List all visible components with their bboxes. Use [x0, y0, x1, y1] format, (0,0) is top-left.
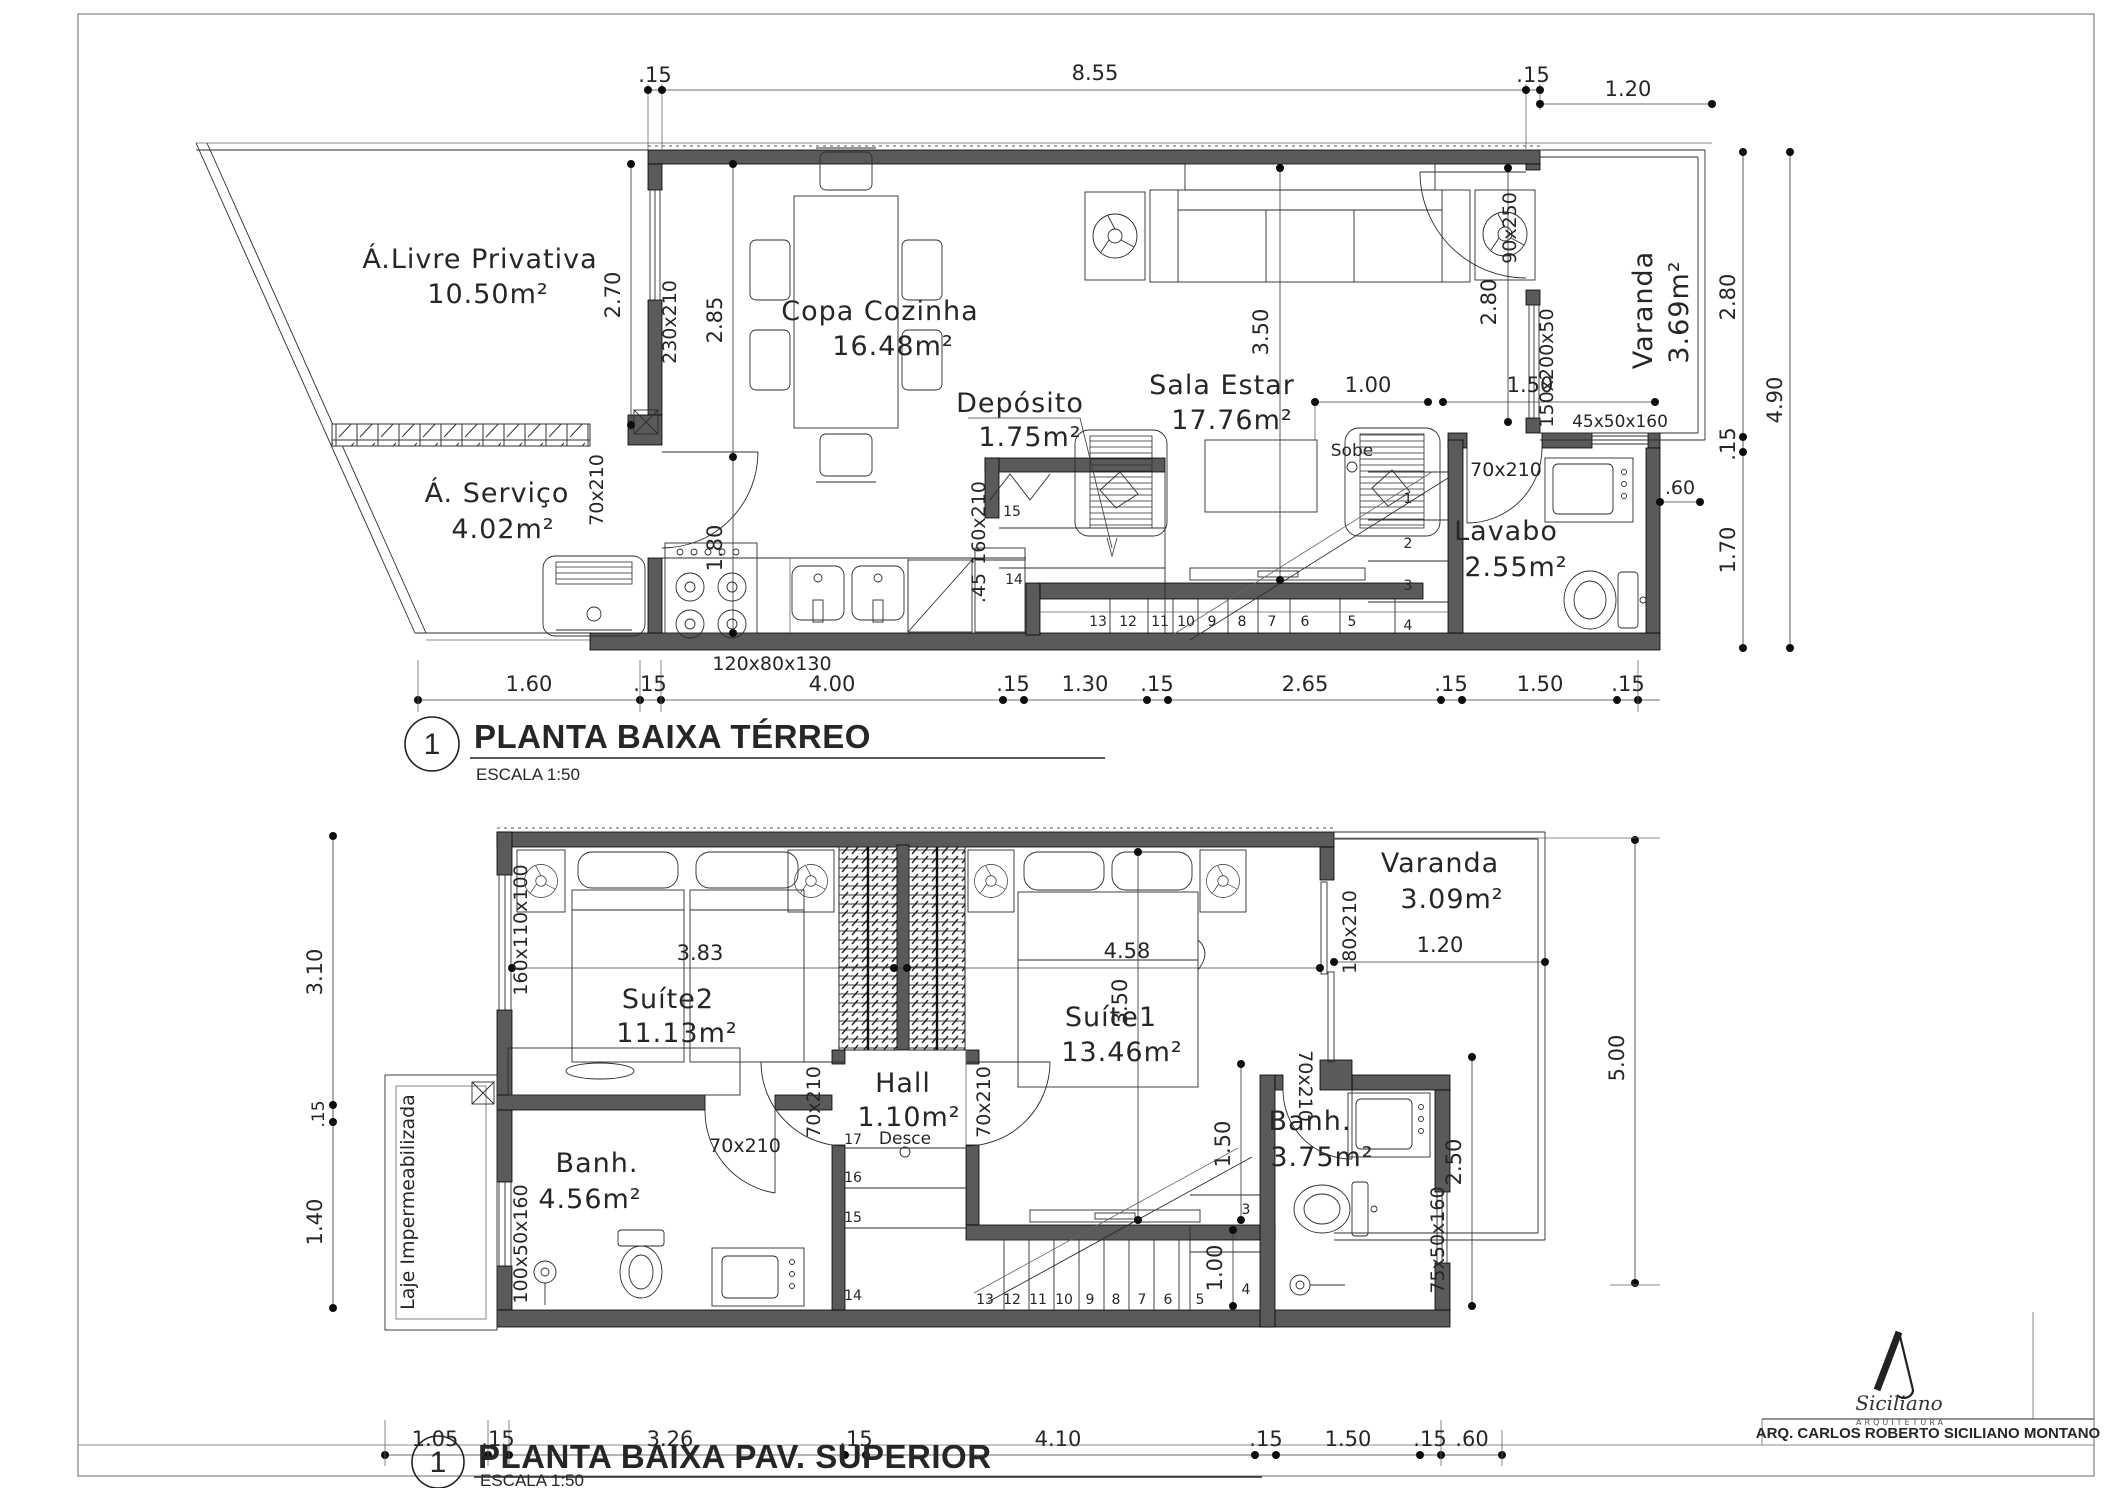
dim-r-170: 1.70 [1716, 527, 1740, 574]
toilet-icon [1564, 571, 1646, 629]
fan-icon [975, 865, 1008, 898]
stair-num: 15 [1003, 504, 1021, 520]
stair-num: 16 [844, 1170, 862, 1186]
dim-b-265: 2.65 [1282, 672, 1329, 696]
dim-sb-15d: .15 [1413, 1427, 1446, 1451]
lavabo-fixtures [1545, 458, 1646, 629]
door-label-hall-r: 70x210 [973, 1066, 995, 1138]
room-label-hall: Hall [875, 1068, 931, 1099]
stair-num: 5 [1348, 614, 1357, 630]
dep-label-160x210: 160x210 [968, 481, 990, 565]
dim-l-140: 1.40 [303, 1199, 327, 1246]
door-label-varanda: 90x250 [1499, 192, 1521, 264]
dim-b-15d: .15 [1434, 672, 1467, 696]
fan-icon [795, 865, 828, 898]
dim-250s: 2.50 [1442, 1139, 1466, 1186]
stair-num: 1 [1404, 491, 1413, 507]
room-label-suite2: Suíte2 [622, 984, 714, 1015]
dim-top-855: 8.55 [1072, 61, 1119, 85]
door-label-banh1: 70x210 [1294, 1050, 1316, 1122]
dim-100: 1.00 [1345, 373, 1392, 397]
win-label-75x50x160: 75x50x160 [1427, 1186, 1449, 1293]
dim-sb-410: 4.10 [1035, 1427, 1082, 1451]
win-label-230x210: 230x210 [659, 280, 681, 364]
stair-num: 10 [1055, 1292, 1073, 1308]
room-area-suite2: 11.13m² [616, 1018, 737, 1049]
stair-num: 6 [1301, 614, 1310, 630]
logo-signature: Siciliano [1855, 1391, 1942, 1415]
dim-b-130: 1.30 [1062, 672, 1109, 696]
stair-label-desce: Desce [879, 1129, 931, 1149]
architect-credit: ARQ. CARLOS ROBERTO SICILIANO MONTANO [1756, 1425, 2101, 1442]
stair-label-sobe: Sobe [1331, 441, 1373, 461]
suite2-furniture [508, 850, 834, 1095]
scale-superior: ESCALA 1:50 [480, 1471, 584, 1488]
dim-r-60: .60 [1665, 477, 1695, 499]
view-number-terreo: 1 [424, 728, 441, 761]
view-number-superior: 1 [430, 1446, 447, 1479]
dresser-icon [508, 1048, 740, 1095]
dim-120s: 1.20 [1417, 933, 1464, 957]
stair-num: 5 [1196, 1292, 1205, 1308]
dim-180: 1.80 [703, 525, 727, 572]
room-area-alivre: 10.50m² [427, 279, 548, 310]
dim-350: 3.50 [1249, 309, 1273, 356]
banh2-fixtures [534, 1230, 804, 1306]
dim-b-15a: .15 [633, 672, 666, 696]
kitchen-furniture [543, 543, 1026, 638]
stair-num: 6 [1164, 1292, 1173, 1308]
room-label-varanda-t: Varanda [1628, 251, 1659, 369]
dim-350s: 3.50 [1108, 979, 1132, 1026]
stair-num: 8 [1112, 1292, 1121, 1308]
sheet-frame [78, 14, 2094, 1476]
room-area-deposito: 1.75m² [978, 422, 1081, 453]
floorplan-drawing: Á.Livre Privativa 10.50m² Á. Serviço 4.0… [0, 0, 2110, 1488]
dep-label-45: .45 [968, 573, 990, 603]
dim-383: 3.83 [677, 941, 724, 965]
room-area-servico: 4.02m² [451, 514, 554, 545]
door-label-lavabo: 70x210 [1470, 459, 1542, 481]
drawing-sheet: Á.Livre Privativa 10.50m² Á. Serviço 4.0… [0, 0, 2110, 1488]
stair-num: 9 [1086, 1292, 1095, 1308]
fan-icon [1207, 865, 1240, 898]
room-label-deposito: Depósito [956, 388, 1084, 419]
door-label-banh2: 70x210 [709, 1135, 781, 1157]
title-superior: PLANTA BAIXA PAV. SUPERIOR [478, 1438, 992, 1475]
stair-num: 9 [1208, 614, 1217, 630]
dim-r-15: .15 [1716, 427, 1740, 460]
room-area-lavabo: 2.55m² [1464, 552, 1567, 583]
room-area-suite1: 13.46m² [1061, 1037, 1182, 1068]
dim-r-280: 2.80 [1716, 274, 1740, 321]
dim-500: 5.00 [1605, 1035, 1629, 1082]
credit-block: Siciliano ARQUITETURA ARQ. CARLOS ROBERT… [1756, 1312, 2101, 1445]
dim-458: 4.58 [1104, 939, 1151, 963]
dim-b-400: 4.00 [809, 672, 856, 696]
vanity-icon [712, 1248, 804, 1306]
door-label-hall-l: 70x210 [803, 1066, 825, 1138]
stair-num: 11 [1151, 614, 1169, 630]
dim-l-15: .15 [309, 1100, 329, 1127]
room-area-sala: 17.76m² [1171, 405, 1292, 436]
dim-top-15r: .15 [1516, 63, 1549, 87]
toilet-icon [1294, 1182, 1377, 1236]
stair-num: 12 [1003, 1292, 1021, 1308]
dim-left-270: 2.70 [601, 272, 625, 319]
room-area-varanda-t: 3.69m² [1664, 260, 1695, 363]
stair-num: 3 [1242, 1202, 1251, 1218]
counter-cabinet-icon [908, 548, 1025, 632]
room-label-sala: Sala Estar [1149, 370, 1295, 401]
terreo-plan: Á.Livre Privativa 10.50m² Á. Serviço 4.0… [196, 61, 1794, 784]
dim-sb-15c: .15 [1249, 1427, 1282, 1451]
stair-num: 13 [1089, 614, 1107, 630]
room-label-banh2: Banh. [556, 1148, 639, 1179]
double-sink-icon [792, 566, 904, 622]
room-label-lavabo: Lavabo [1454, 516, 1558, 547]
room-area-copa: 16.48m² [832, 331, 953, 362]
superior-title-block: 1 PLANTA BAIXA PAV. SUPERIOR ESCALA 1:50 [412, 1436, 1262, 1488]
cobogo-wall [332, 424, 590, 446]
win-label-45x50x160: 45x50x160 [1572, 412, 1668, 432]
laje-label: Laje Impermeabilizada [397, 1094, 419, 1310]
dim-100s: 1.00 [1203, 1245, 1227, 1292]
stair-num: 12 [1119, 614, 1137, 630]
dim-285: 2.85 [703, 297, 727, 344]
stair-num: 7 [1268, 614, 1277, 630]
stair-num: 11 [1029, 1292, 1047, 1308]
dim-150h: 1.50 [1507, 373, 1554, 397]
win-label-150x200x50: 150x200x50 [1536, 308, 1558, 427]
stair-num: 4 [1404, 618, 1413, 634]
room-label-servico: Á. Serviço [425, 477, 570, 509]
room-label-copa: Copa Cozinha [781, 296, 978, 327]
stair-num: 3 [1404, 578, 1413, 594]
scale-terreo: ESCALA 1:50 [476, 765, 580, 784]
dim-150s: 1.50 [1211, 1121, 1235, 1168]
stair-num: 17 [844, 1132, 862, 1148]
dim-top-120: 1.20 [1605, 77, 1652, 101]
dim-r-490: 4.90 [1763, 377, 1787, 424]
dim-b-160: 1.60 [506, 672, 553, 696]
room-label-varanda-s: Varanda [1381, 848, 1499, 879]
door-label-servico: 70x210 [586, 454, 608, 526]
architect-logo: Siciliano ARQUITETURA [1855, 1332, 1946, 1427]
stair-num: 10 [1177, 614, 1195, 630]
title-terreo: PLANTA BAIXA TÉRREO [474, 718, 871, 755]
dim-top-15l: .15 [638, 63, 671, 87]
armchair-icon [1075, 430, 1167, 536]
coffee-table-icon [1205, 440, 1317, 512]
room-area-banh2: 4.56m² [538, 1184, 641, 1215]
superior-plan: Suíte2 11.13m² Suíte1 13.46m² Hall 1.10m… [303, 828, 1660, 1488]
washing-machine-icon [543, 556, 645, 636]
speaker-icon [1093, 214, 1137, 258]
stair-num: 14 [844, 1288, 862, 1304]
stair-num: 2 [1404, 536, 1413, 552]
toilet-icon [618, 1230, 664, 1298]
stair-num: 4 [1242, 1282, 1251, 1298]
room-area-banh1: 3.75m² [1270, 1142, 1373, 1173]
room-area-varanda-s: 3.09m² [1400, 884, 1503, 915]
dim-b-150: 1.50 [1517, 672, 1564, 696]
dim-b-15c: .15 [1140, 672, 1173, 696]
dim-b-15e: .15 [1611, 672, 1644, 696]
room-label-alivre: Á.Livre Privativa [362, 243, 597, 275]
stair-num: 8 [1238, 614, 1247, 630]
dim-sb-60: .60 [1455, 1427, 1488, 1451]
stair-num: 14 [1005, 572, 1023, 588]
dim-sb-150: 1.50 [1325, 1427, 1372, 1451]
win-label-160x110x100: 160x110x100 [510, 864, 532, 995]
dim-b-15b: .15 [996, 672, 1029, 696]
dim-l-310: 3.10 [303, 949, 327, 996]
door-label-180x210: 180x210 [1339, 890, 1361, 974]
stair-num: 7 [1138, 1292, 1147, 1308]
stair-num: 13 [976, 1292, 994, 1308]
stair-num: 15 [844, 1210, 862, 1226]
win-label-100x50x160: 100x50x160 [510, 1184, 532, 1303]
dim-280-int: 2.80 [1477, 279, 1501, 326]
terreo-title-block: 1 PLANTA BAIXA TÉRREO ESCALA 1:50 [405, 717, 1105, 784]
